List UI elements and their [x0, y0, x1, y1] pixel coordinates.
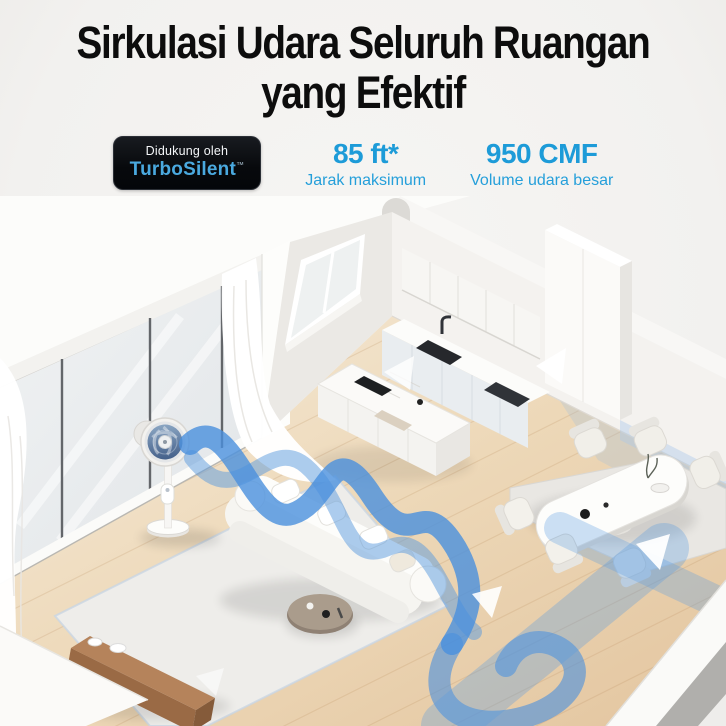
turbosilent-badge: Didukung oleh TurboSilent™: [113, 136, 262, 190]
page-title: Sirkulasi Udara Seluruh Ruangan yang Efe…: [51, 18, 675, 119]
badge-supporting-text: Didukung oleh: [130, 144, 245, 158]
cup: [307, 603, 314, 610]
stat-distance-label: Jarak maksimum: [305, 172, 426, 190]
fan-controls: [161, 484, 174, 504]
camera-object: [322, 610, 330, 618]
stat-volume-value: 950 CMF: [470, 138, 613, 170]
ad-canvas: Sirkulasi Udara Seluruh Ruangan yang Efe…: [0, 0, 726, 726]
stat-distance-value: 85 ft*: [305, 138, 426, 170]
stat-volume-label: Volume udara besar: [470, 172, 613, 190]
decor-object: [110, 644, 126, 653]
isometric-room-illustration: [0, 196, 726, 726]
stat-distance: 85 ft* Jarak maksimum: [305, 136, 426, 190]
badge-brand: TurboSilent™: [130, 159, 245, 181]
title-line-1: Sirkulasi Udara Seluruh Ruangan: [51, 18, 675, 68]
trademark-symbol: ™: [236, 161, 244, 170]
small-speaker: [88, 638, 102, 646]
stat-volume: 950 CMF Volume udara besar: [470, 136, 613, 190]
title-line-2: yang Efektif: [51, 68, 675, 118]
kettle: [417, 399, 423, 405]
info-row: Didukung oleh TurboSilent™ 85 ft* Jarak …: [0, 136, 726, 190]
